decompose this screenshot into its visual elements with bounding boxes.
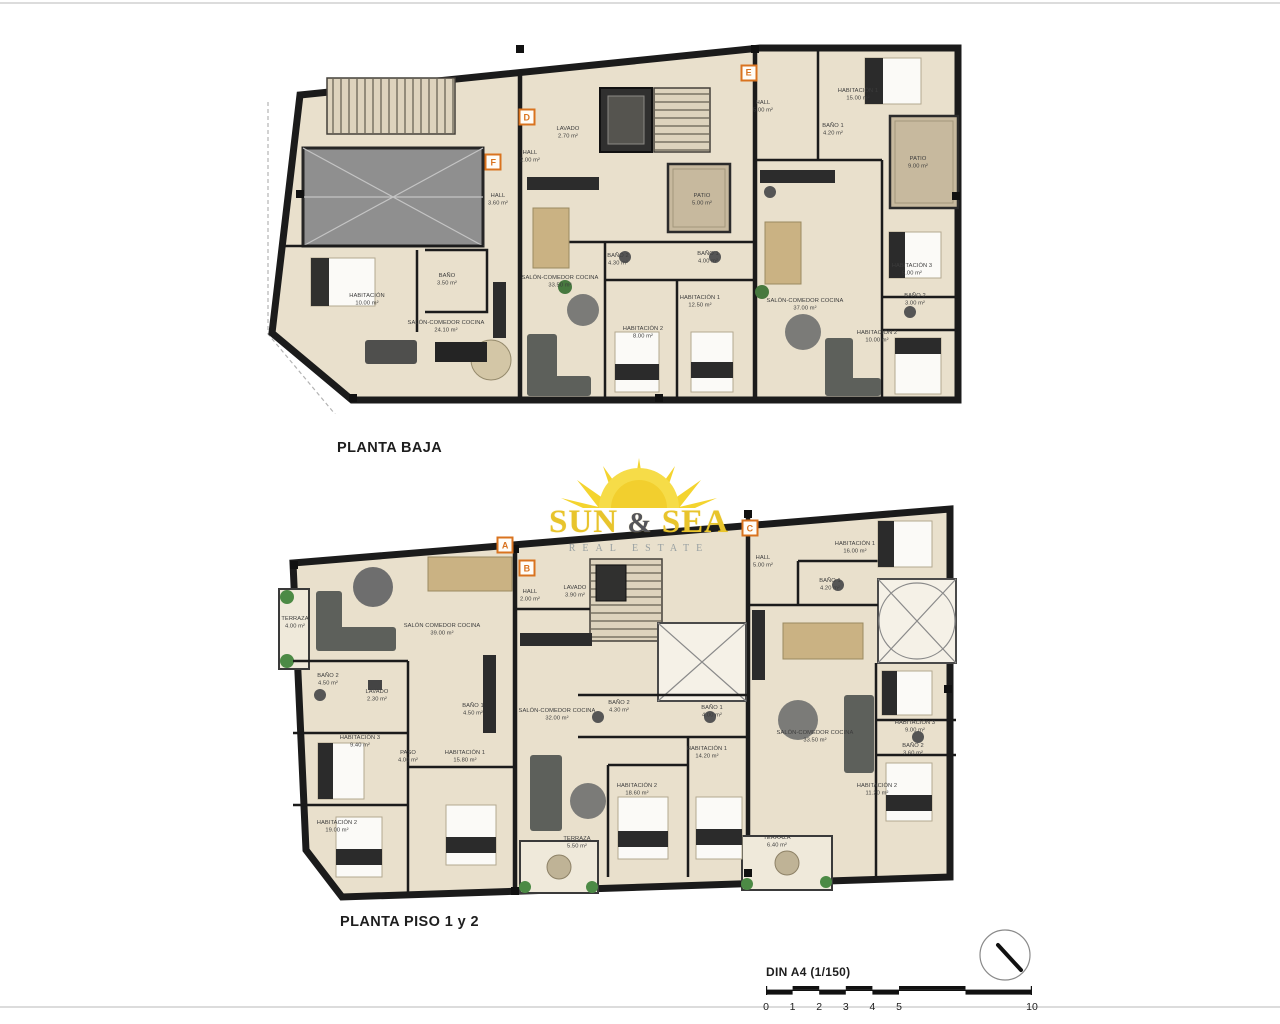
- plan-title-planta-baja: PLANTA BAJA: [337, 440, 442, 456]
- plan-title-planta-piso: PLANTA PISO 1 y 2: [340, 914, 479, 930]
- room-label-ba-o: BAÑO3.50 m²: [437, 273, 457, 287]
- room-label-terraza: TERRAZA6.40 m²: [763, 835, 790, 849]
- scale-tick-2: 2: [816, 1001, 822, 1013]
- room-label-habitaci-n-2: HABITACIÓN 210.00 m²: [857, 330, 897, 344]
- room-label-habitaci-n-1: HABITACIÓN 115.00 m²: [838, 88, 878, 102]
- room-label-sal-n-comedor-cocina: SALÓN-COMEDOR COCINA33.50 m²: [521, 275, 598, 289]
- room-label-habitaci-n-3: HABITACIÓN 39.00 m²: [895, 720, 935, 734]
- apartment-marker-d: D: [518, 109, 535, 126]
- room-label-hall: HALL2.00 m²: [520, 589, 540, 603]
- scale-tick-3: 3: [843, 1001, 849, 1013]
- north-arrow-icon: [978, 928, 1032, 982]
- room-label-sal-n-comedor-cocina: SALÓN COMEDOR COCINA39.00 m²: [404, 623, 481, 637]
- sun-and-sea-logo: SUN & SEA REAL ESTATE: [520, 450, 758, 554]
- room-label-ba-o-1: BAÑO 14.00 m²: [697, 251, 719, 265]
- apartment-marker-e: E: [740, 64, 757, 81]
- room-label-sal-n-comedor-cocina: SALÓN-COMEDOR COCINA32.00 m²: [518, 708, 595, 722]
- room-label-ba-o-1: BAÑO 14.50 m²: [462, 703, 484, 717]
- planta-piso-labels: TERRAZA4.00 m²SALÓN COMEDOR COCINA39.00 …: [278, 505, 958, 905]
- apartment-marker-a: A: [497, 537, 514, 554]
- scale-tick-10: 10: [1026, 1001, 1038, 1013]
- room-label-habitaci-n-2: HABITACIÓN 218.60 m²: [617, 783, 657, 797]
- sun-icon: [559, 450, 719, 512]
- room-label-habitaci-n-1: HABITACIÓN 115.80 m²: [445, 750, 485, 764]
- room-label-lavado: LAVADO2.70 m²: [557, 126, 580, 140]
- scale-tick-4: 4: [869, 1001, 875, 1013]
- scale-bar-graphic: [766, 982, 1032, 1000]
- room-label-ba-o-1: BAÑO 14.20 m²: [822, 123, 844, 137]
- logo-wordmark: SUN & SEA: [520, 506, 758, 539]
- apartment-marker-b: B: [518, 560, 535, 577]
- room-label-ba-o-1: BAÑO 14.20 m²: [819, 578, 841, 592]
- room-label-ba-o-2: BAÑO 23.60 m²: [902, 743, 924, 757]
- room-label-habitaci-n-2: HABITACIÓN 219.00 m²: [317, 820, 357, 834]
- floorplan-page: HABITACIÓN10.00 m²BAÑO3.50 m²SALÓN-COMED…: [0, 0, 1280, 1024]
- room-label-habitaci-n-2: HABITACIÓN 28.00 m²: [623, 326, 663, 340]
- room-label-terraza: TERRAZA5.50 m²: [564, 836, 591, 850]
- room-label-patio: PATIO9.00 m²: [908, 156, 928, 170]
- room-label-habitaci-n-1: HABITACIÓN 114.20 m²: [687, 746, 727, 760]
- room-label-habitaci-n-3: HABITACIÓN 35.00 m²: [892, 263, 932, 277]
- scale-ticks: 01234510: [766, 1001, 1032, 1013]
- room-label-paso: PASO4.00 m²: [398, 750, 418, 764]
- room-label-hall: HALL2.00 m²: [520, 150, 540, 164]
- room-label-hall: HALL5.00 m²: [753, 555, 773, 569]
- page-top-rule: [0, 2, 1280, 4]
- scale-bar-svg: [766, 986, 1032, 995]
- apartment-marker-f: F: [485, 154, 502, 171]
- scale-tick-5: 5: [896, 1001, 902, 1013]
- scale-tick-0: 0: [763, 1001, 769, 1013]
- room-label-ba-o-2: BAÑO 24.30 m²: [607, 253, 629, 267]
- room-label-ba-o-2: BAÑO 24.30 m²: [608, 700, 630, 714]
- room-label-sal-n-comedor-cocina: SALÓN-COMEDOR COCINA24.10 m²: [408, 320, 485, 334]
- room-label-habitaci-n: HABITACIÓN10.00 m²: [349, 293, 384, 307]
- room-label-ba-o-1: BAÑO 14.00 m²: [701, 705, 723, 719]
- page-bottom-rule: [0, 1006, 1280, 1008]
- logo-subtitle: REAL ESTATE: [520, 543, 758, 554]
- logo-word-sun: SUN: [549, 504, 618, 540]
- room-label-hall: HALL5.00 m²: [753, 100, 773, 114]
- room-label-terraza: TERRAZA4.00 m²: [281, 616, 308, 630]
- logo-word-sea: SEA: [662, 504, 729, 540]
- room-label-ba-o-2: BAÑO 24.50 m²: [318, 673, 340, 687]
- room-label-habitaci-n-2: HABITACIÓN 211.20 m²: [857, 783, 897, 797]
- room-label-hall: HALL3.60 m²: [488, 193, 508, 207]
- room-label-lavado: LAVADO3.90 m²: [564, 585, 587, 599]
- logo-ampersand: &: [627, 507, 652, 539]
- room-label-lavado: LAVADO2.30 m²: [366, 689, 389, 703]
- room-label-habitaci-n-3: HABITACIÓN 39.40 m²: [340, 735, 380, 749]
- floor-plan-planta-baja: HABITACIÓN10.00 m²BAÑO3.50 m²SALÓN-COMED…: [265, 42, 965, 414]
- room-label-sal-n-comedor-cocina: SALÓN-COMEDOR COCINA37.00 m²: [766, 298, 843, 312]
- scale-tick-1: 1: [790, 1001, 796, 1013]
- room-label-ba-o-2: BAÑO 23.00 m²: [905, 293, 927, 307]
- room-label-habitaci-n-1: HABITACIÓN 116.00 m²: [835, 541, 875, 555]
- floor-plan-planta-piso: TERRAZA4.00 m²SALÓN COMEDOR COCINA39.00 …: [278, 505, 958, 905]
- room-label-habitaci-n-1: HABITACIÓN 112.50 m²: [679, 295, 719, 309]
- planta-baja-labels: HABITACIÓN10.00 m²BAÑO3.50 m²SALÓN-COMED…: [265, 42, 965, 414]
- room-label-sal-n-comedor-cocina: SALÓN-COMEDOR COCINA33.50 m²: [777, 730, 854, 744]
- room-label-patio: PATIO5.00 m²: [692, 193, 712, 207]
